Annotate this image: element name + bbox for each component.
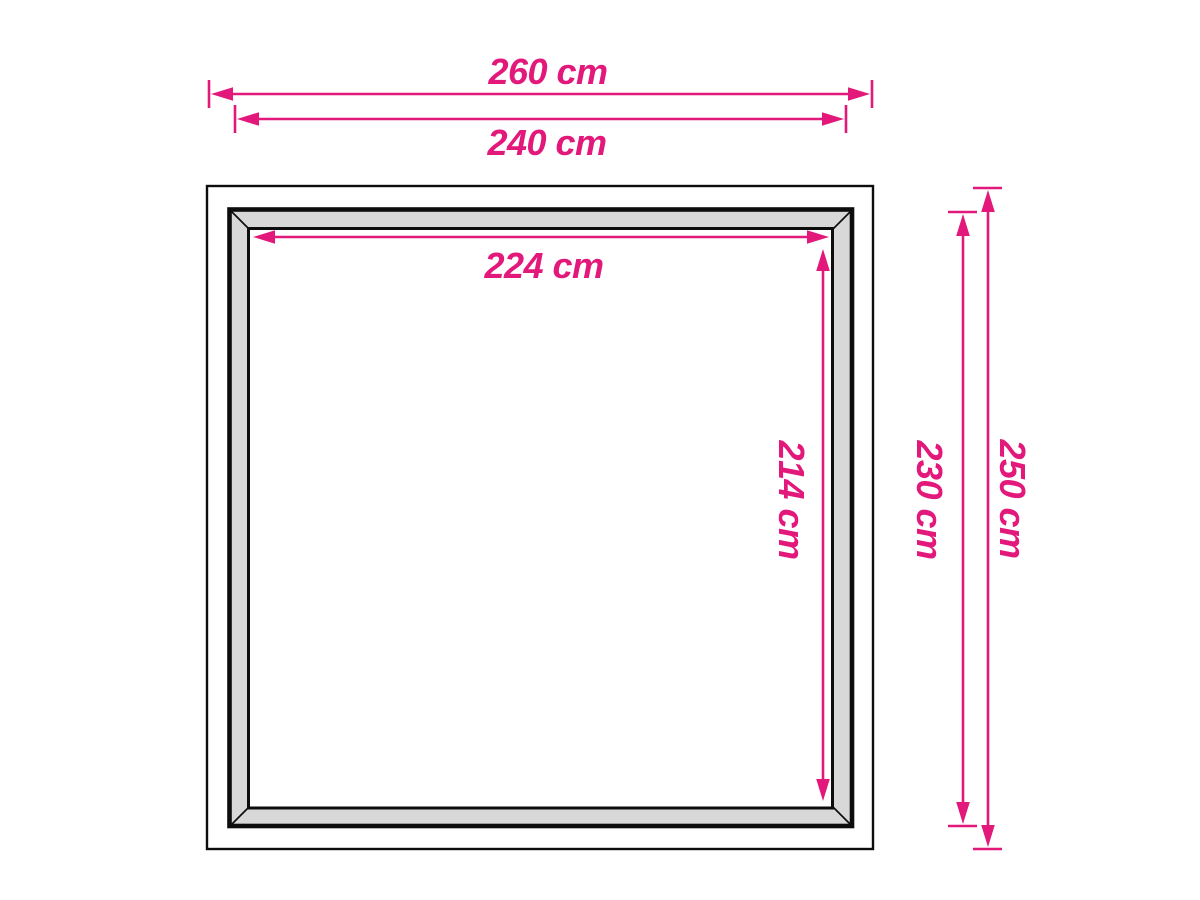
arrow-right-icon (848, 87, 870, 101)
arrow-down-icon (981, 825, 995, 847)
dim-label-frame-width: 240 cm (487, 122, 606, 164)
dim-label-opening-width: 224 cm (484, 245, 603, 287)
dim-line-frame-height (948, 212, 977, 826)
arrow-down-icon (956, 802, 970, 824)
dim-label-frame-height: 230 cm (908, 440, 950, 559)
arrow-up-icon (981, 190, 995, 212)
dim-label-outer-width: 260 cm (488, 51, 607, 93)
dimension-diagram: 260 cm 240 cm 224 cm 214 cm 230 cm 250 c… (0, 0, 1200, 900)
arrow-left-icon (237, 112, 259, 126)
arrow-right-icon (822, 112, 844, 126)
frame-opening-rect (249, 229, 833, 809)
arrow-left-icon (211, 87, 233, 101)
dim-label-opening-height: 214 cm (770, 440, 812, 559)
arrow-up-icon (956, 214, 970, 236)
dim-label-outer-height: 250 cm (991, 439, 1033, 558)
